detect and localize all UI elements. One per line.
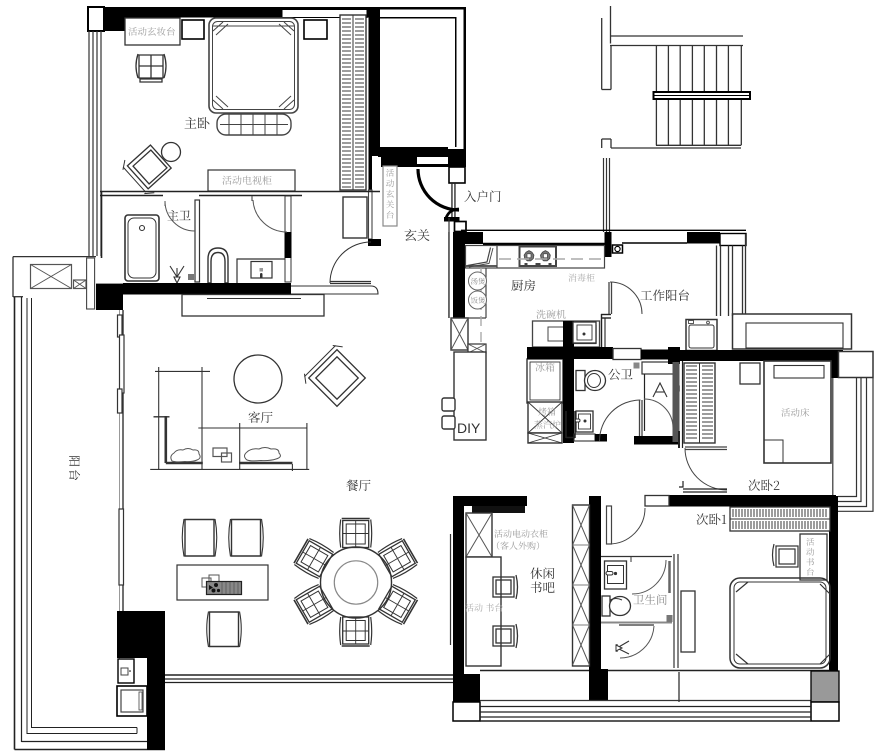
svg-text:DIY: DIY xyxy=(457,420,481,436)
